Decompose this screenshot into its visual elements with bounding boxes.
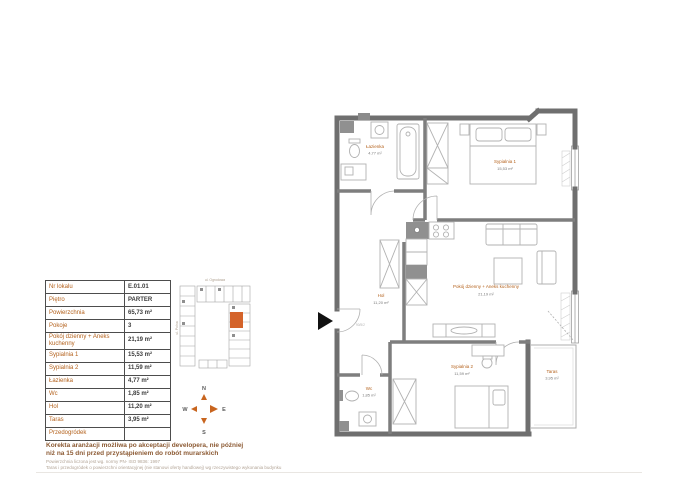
washbasin-icon (371, 122, 388, 138)
row-label: Sypialnia 2 (46, 362, 125, 375)
bathtub-icon (397, 124, 419, 179)
room-label-sypialnia2: Sypialnia 2 (451, 364, 474, 369)
entrance-door-code: 90/5/2 (356, 323, 365, 327)
room-area-sypialnia1: 15,53 m² (497, 166, 513, 171)
row-label: Pokoje (46, 320, 125, 333)
compass-west-label: W (182, 407, 188, 413)
toilet-icon (349, 139, 360, 158)
room-label-lazienka: Łazienka (366, 144, 385, 149)
room-area-wc: 1,85 m² (362, 393, 376, 398)
row-value: 65,73 m² (125, 307, 171, 320)
row-value: 11,59 m² (125, 362, 171, 375)
table-row: Powierzchnia65,73 m² (46, 307, 171, 320)
row-value: 21,19 m² (125, 333, 171, 350)
table-row: Nr lokaluE.01.01 (46, 281, 171, 294)
floorplan-sheet: Nr lokaluE.01.01PiętroPARTERPowierzchnia… (0, 0, 678, 480)
table-row: Taras3,95 m² (46, 414, 171, 427)
shaft-block (358, 113, 370, 120)
row-value: 1,85 m² (125, 388, 171, 401)
radiator-hatching (561, 151, 570, 340)
row-label: Nr lokalu (46, 281, 125, 294)
compass-north-label: N (202, 386, 206, 392)
table-row: Sypialnia 211,59 m² (46, 362, 171, 375)
disclaimer-line2: niż na 15 dni przed przystąpieniem do ro… (46, 450, 316, 458)
row-value: 11,20 m² (125, 401, 171, 414)
row-value: 15,53 m² (125, 349, 171, 362)
street-label-top: ul. Ogrodowa (205, 278, 225, 282)
bedroom1-furniture (427, 123, 546, 184)
row-label: Sypialnia 1 (46, 349, 125, 362)
compass-arrows-icon (191, 394, 218, 424)
entrance-arrow-icon (318, 312, 333, 330)
table-row: Przedogródek (46, 427, 171, 440)
table-row: PiętroPARTER (46, 294, 171, 307)
bedroom2-furniture (393, 345, 508, 428)
disclaimer-note2: Taras i przedogródek o powierzchni orien… (46, 465, 316, 471)
wardrobe-icon (427, 123, 448, 184)
disclaimer-footer: Korekta aranżacji możliwa po akceptacji … (46, 442, 316, 471)
table-row: Pokój dzienny + Aneks kuchenny21,19 m² (46, 333, 171, 350)
double-bed-icon (460, 124, 546, 184)
table-row: Pokoje3 (46, 320, 171, 333)
sink-faucet-icon (415, 228, 420, 233)
row-label: Wc (46, 388, 125, 401)
coffee-table-icon (494, 258, 522, 284)
row-value: 3,95 m² (125, 414, 171, 427)
single-bed-icon (455, 386, 508, 428)
row-value: E.01.01 (125, 281, 171, 294)
street-label-left: ul. Polna (175, 321, 179, 334)
wardrobe2-icon (393, 379, 416, 424)
dining-table-icon (433, 324, 495, 337)
row-value: PARTER (125, 294, 171, 307)
row-label: Pokój dzienny + Aneks kuchenny (46, 333, 125, 350)
row-label: Przedogródek (46, 427, 125, 440)
room-label-pokoj: Pokój dzienny + Aneks kuchenny (453, 284, 520, 289)
compass-rose: N W E S (178, 378, 230, 436)
room-label-wc: Wc (366, 386, 373, 391)
shower-block (340, 121, 354, 133)
cabinet-icon (341, 164, 366, 180)
site-locator-map: ul. Ogrodowa ul. Polna (172, 268, 258, 378)
row-label: Taras (46, 414, 125, 427)
room-area-sypialnia2: 11,59 m² (454, 371, 470, 376)
row-value: 4,77 m² (125, 375, 171, 388)
room-label-taras: Taras (546, 369, 558, 374)
stove-icon (429, 222, 454, 239)
bottom-divider (36, 472, 642, 473)
wc-toilet-icon (346, 391, 359, 401)
row-label: Hol (46, 401, 125, 414)
unit-parameters-table: Nr lokaluE.01.01PiętroPARTERPowierzchnia… (45, 280, 171, 441)
kitchen-counter (406, 239, 427, 305)
room-area-lazienka: 4,77 m² (368, 151, 382, 156)
table-row: Łazienka4,77 m² (46, 375, 171, 388)
row-label: Łazienka (46, 375, 125, 388)
table-row: Hol11,20 m² (46, 401, 171, 414)
row-label: Powierzchnia (46, 307, 125, 320)
room-area-hol: 11,20 m² (373, 300, 389, 305)
compass-south-label: S (202, 430, 206, 436)
desk-chair-icon (472, 345, 504, 368)
unit-table-body: Nr lokaluE.01.01PiętroPARTERPowierzchnia… (46, 281, 171, 441)
room-label-hol: Hol (378, 293, 385, 298)
compass-east-label: E (222, 407, 226, 413)
row-value: 3 (125, 320, 171, 333)
row-label: Piętro (46, 294, 125, 307)
wc-sink-icon (359, 412, 376, 426)
terrace-outline (531, 345, 576, 428)
table-row: Wc1,85 m² (46, 388, 171, 401)
room-area-pokoj: 21,19 m² (478, 292, 494, 297)
room-label-sypialnia1: Sypialnia 1 (494, 159, 517, 164)
table-row: Sypialnia 115,53 m² (46, 349, 171, 362)
hall-wardrobe-icon (380, 240, 399, 288)
living-kitchen-furniture (380, 222, 556, 337)
disclaimer-note1: Powierzchnia liczona jest wg. normy PN- … (46, 459, 316, 465)
disclaimer-line1: Korekta aranżacji możliwa po akceptacji … (46, 442, 316, 450)
apartment-floor-plan: 90/5/2 (315, 105, 585, 450)
room-area-taras: 3,95 m² (545, 376, 559, 381)
highlighted-unit-marker (230, 312, 243, 328)
row-value (125, 427, 171, 440)
